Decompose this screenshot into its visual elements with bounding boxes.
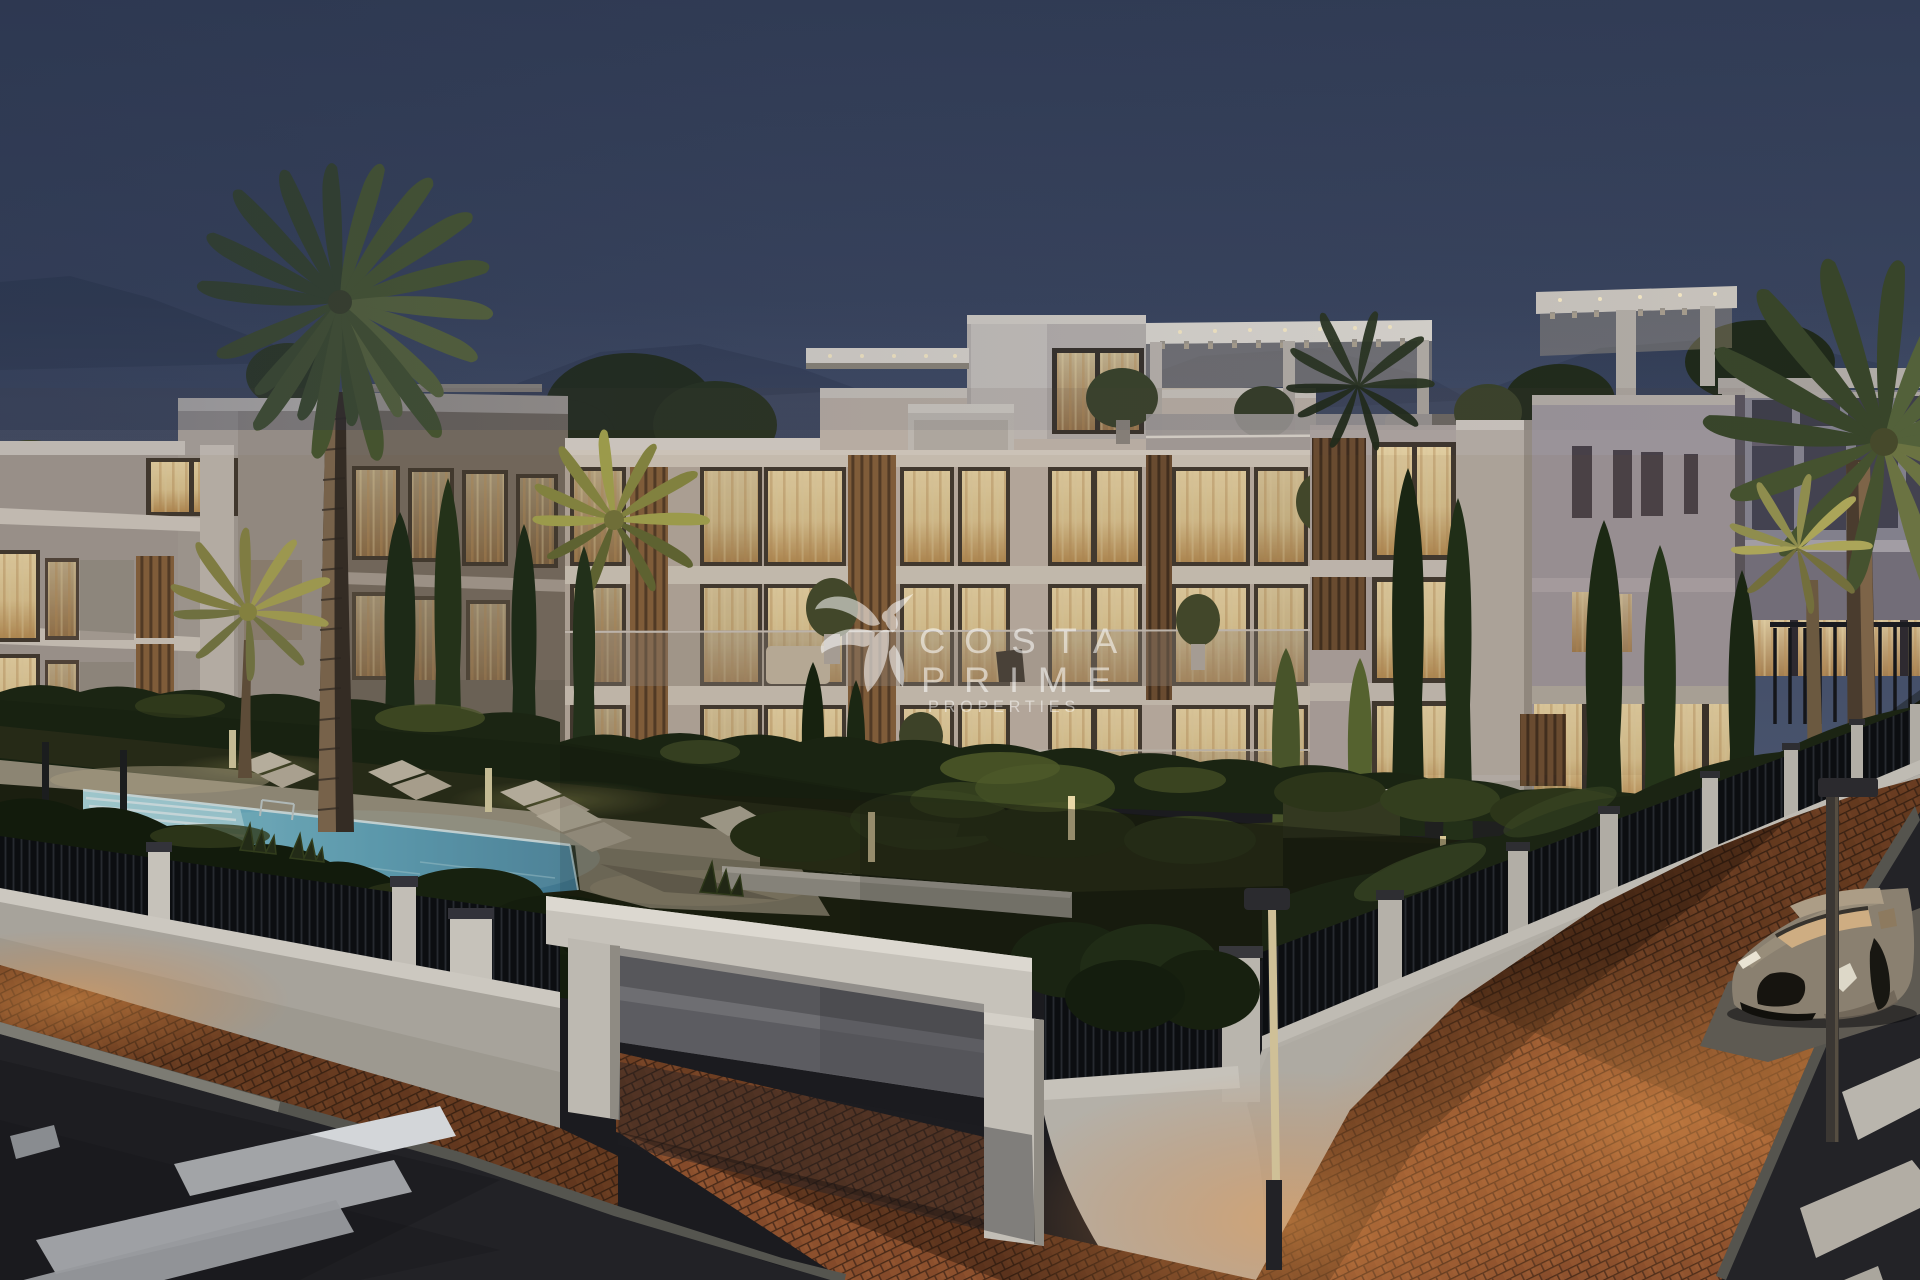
svg-text:PRIME: PRIME — [921, 661, 1130, 700]
svg-text:COSTA: COSTA — [919, 622, 1136, 661]
svg-text:PROPERTIES: PROPERTIES — [928, 697, 1080, 716]
